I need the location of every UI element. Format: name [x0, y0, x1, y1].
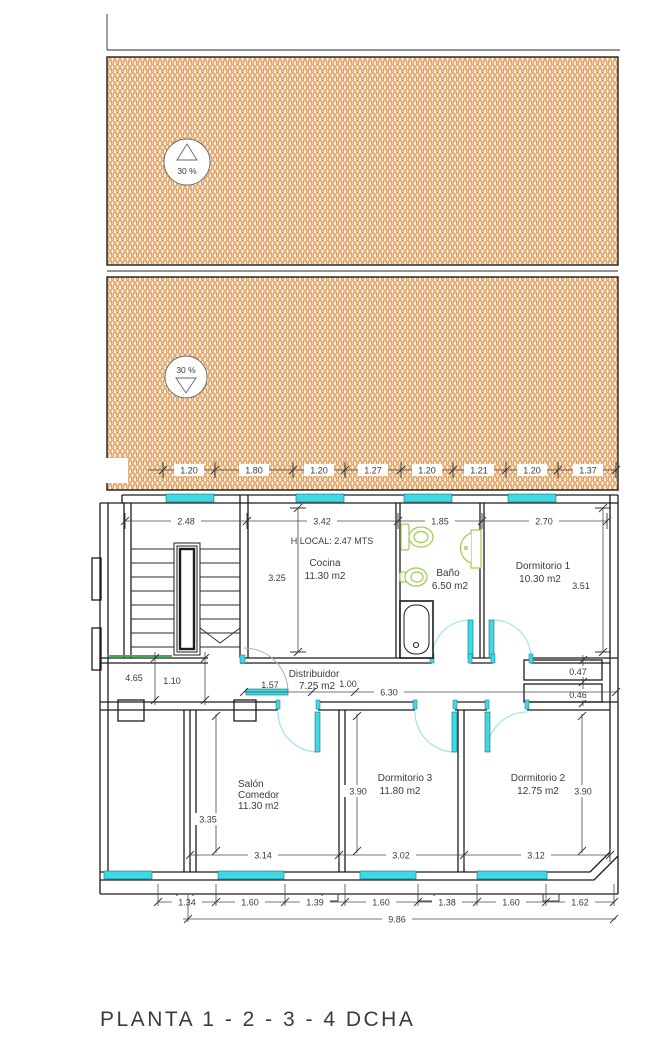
dim-label: 1.20 [523, 466, 541, 476]
window [166, 494, 214, 502]
dim-label: 1.85 [431, 517, 449, 527]
dim-label: 1.60 [372, 898, 390, 908]
dim-room-widths-bottom: 3.14 3.02 3.12 [186, 848, 614, 862]
dim-label: 1.34 [178, 898, 196, 908]
dim-label: 1.20 [180, 466, 198, 476]
dim-label: 1.80 [245, 466, 263, 476]
window [477, 871, 547, 879]
dim-label: 1.62 [571, 898, 589, 908]
dim-label: 1.20 [310, 466, 328, 476]
door-leaf [452, 712, 457, 752]
dim-label: 1.00 [339, 679, 357, 689]
dim-label: 3.51 [572, 581, 590, 591]
dim-cocina-depth: 3.25 [268, 504, 306, 656]
floor-plan-drawing: 30 % 30 % 1.20 1.80 1.20 1.27 1.20 1.21 … [0, 0, 662, 1064]
stair-direction-chevron [200, 628, 240, 643]
exterior-walls [92, 495, 618, 901]
slope-badge-up [164, 139, 210, 185]
room-name-dormitorio1: Dormitorio 1 [516, 561, 571, 572]
ramp-upper: 30 % [107, 57, 618, 265]
dim-label: 9.86 [388, 915, 406, 925]
bathtub-icon [400, 601, 433, 658]
footing-tab [543, 894, 559, 901]
stair-core [180, 549, 194, 649]
staircase [107, 543, 240, 656]
room-area-dormitorio1: 10.30 m2 [519, 574, 561, 585]
dim-label: 0.46 [569, 690, 587, 700]
ramp-lower: 30 % [101, 277, 618, 490]
room-area-dormitorio3: 11.80 m2 [380, 786, 421, 797]
sink-icon [461, 530, 481, 568]
room-name-cocina: Cocina [309, 558, 341, 569]
dim-label: 0.47 [569, 667, 587, 677]
room-area-salon: 11.30 m2 [238, 801, 279, 812]
room-name-dormitorio2: Dormitorio 2 [511, 773, 566, 784]
dim-label: 3.12 [527, 851, 545, 861]
window [104, 871, 152, 879]
dim-room-widths-top: 2.48 3.42 1.85 2.70 [121, 513, 611, 529]
dim-bottom-row: 1.34 1.60 1.39 1.60 1.38 1.60 1.62 [154, 884, 618, 908]
dim-label: 1.39 [306, 898, 324, 908]
ceiling-height-note: H LOCAL: 2.47 MTS [291, 536, 374, 546]
dim-label: 1.10 [163, 676, 181, 686]
door-leaf [468, 620, 473, 658]
dim-label: 3.90 [349, 787, 367, 797]
window [218, 871, 284, 879]
room-name-bano: Baño [436, 568, 460, 579]
dim-label: 6.30 [380, 688, 398, 698]
room-name-salon-2: Comedor [238, 790, 280, 801]
hatch-blank-patch [101, 458, 128, 483]
door-leaf [485, 712, 490, 752]
window [360, 871, 416, 879]
dim-stair-exit: 4.65 1.10 [125, 652, 209, 705]
room-name-salon-1: Salón [238, 779, 264, 790]
window [508, 494, 556, 502]
dim-label: 3.90 [574, 787, 592, 797]
dim-label: 1.57 [261, 680, 279, 690]
room-area-bano: 6.50 m2 [432, 581, 469, 592]
room-area-dormitorio2: 12.75 m2 [517, 786, 559, 797]
site-boundary [107, 14, 620, 50]
dim-label: 4.65 [125, 673, 143, 683]
dim-label: 2.48 [177, 517, 195, 527]
dim-label: 1.60 [502, 898, 520, 908]
dim-label: 1.27 [364, 466, 382, 476]
room-name-distribuidor: Distribuidor [289, 669, 340, 680]
window [296, 494, 344, 502]
ramp-upper-slope-label: 30 % [177, 166, 197, 176]
ramp-lower-slope-label: 30 % [176, 365, 196, 375]
dim-label: 3.42 [313, 517, 331, 527]
dim-label: 1.60 [241, 898, 259, 908]
floor-plan-page: 30 % 30 % 1.20 1.80 1.20 1.27 1.20 1.21 … [0, 0, 662, 1064]
dim-label: 1.37 [579, 466, 597, 476]
toilet-icon [401, 524, 433, 550]
window [404, 494, 452, 502]
dim-label: 1.21 [470, 466, 488, 476]
room-name-dormitorio3: Dormitorio 3 [378, 773, 433, 784]
door-leaf [315, 712, 320, 752]
dim-label: 3.35 [199, 815, 217, 825]
dim-label: 3.02 [392, 851, 410, 861]
dim-label: 1.20 [418, 466, 436, 476]
dim-dorm1-depth: 3.51 [572, 504, 611, 656]
door-leaf [489, 620, 494, 658]
room-area-cocina: 11.30 m2 [305, 571, 346, 582]
dim-label: 2.70 [535, 517, 553, 527]
dim-label: 3.25 [268, 573, 286, 583]
dim-label: 1.38 [438, 898, 456, 908]
dim-label: 3.14 [254, 851, 272, 861]
door-jambs [240, 654, 533, 709]
slope-badge-down [165, 356, 207, 398]
bidet-icon [400, 568, 427, 586]
room-area-distribuidor: 7.25 m2 [299, 681, 336, 692]
drawing-title: PLANTA 1 - 2 - 3 - 4 DCHA [100, 1008, 415, 1031]
